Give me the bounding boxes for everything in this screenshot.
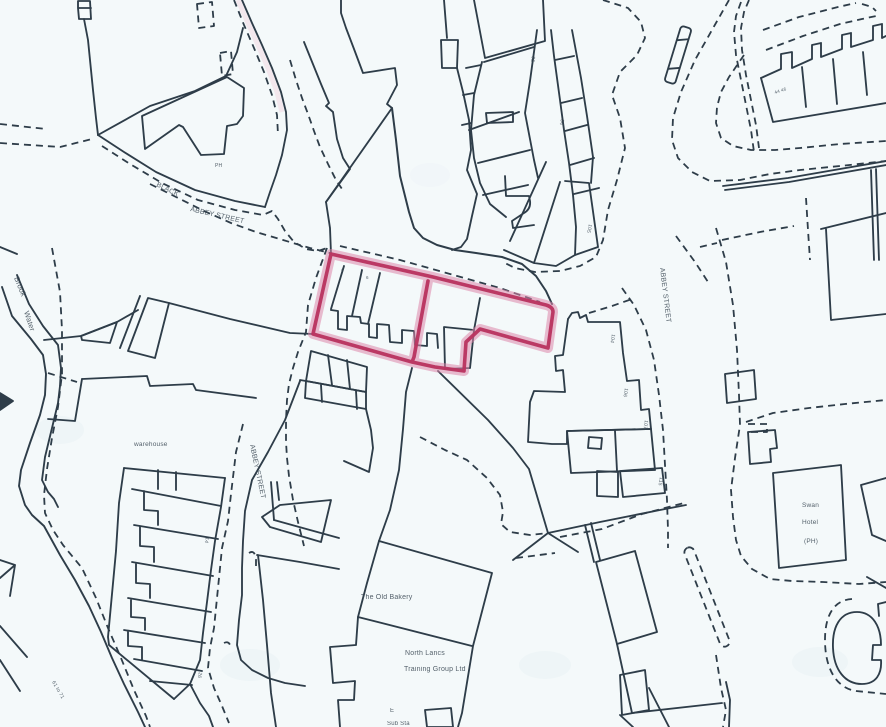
- svg-text:warehouse: warehouse: [133, 441, 168, 448]
- svg-text:Swan: Swan: [802, 502, 819, 509]
- svg-text:6: 6: [366, 275, 369, 280]
- svg-text:Hotel: Hotel: [802, 519, 819, 526]
- svg-text:Training Group Ltd: Training Group Ltd: [404, 666, 466, 673]
- svg-text:North Lancs: North Lancs: [405, 650, 445, 657]
- svg-text:E: E: [390, 708, 394, 714]
- svg-text:(PH): (PH): [804, 538, 818, 545]
- svg-text:PH: PH: [215, 163, 223, 169]
- svg-text:The Old Bakery: The Old Bakery: [361, 594, 413, 601]
- svg-text:4: 4: [341, 267, 344, 272]
- svg-text:Sub Sta: Sub Sta: [387, 721, 410, 727]
